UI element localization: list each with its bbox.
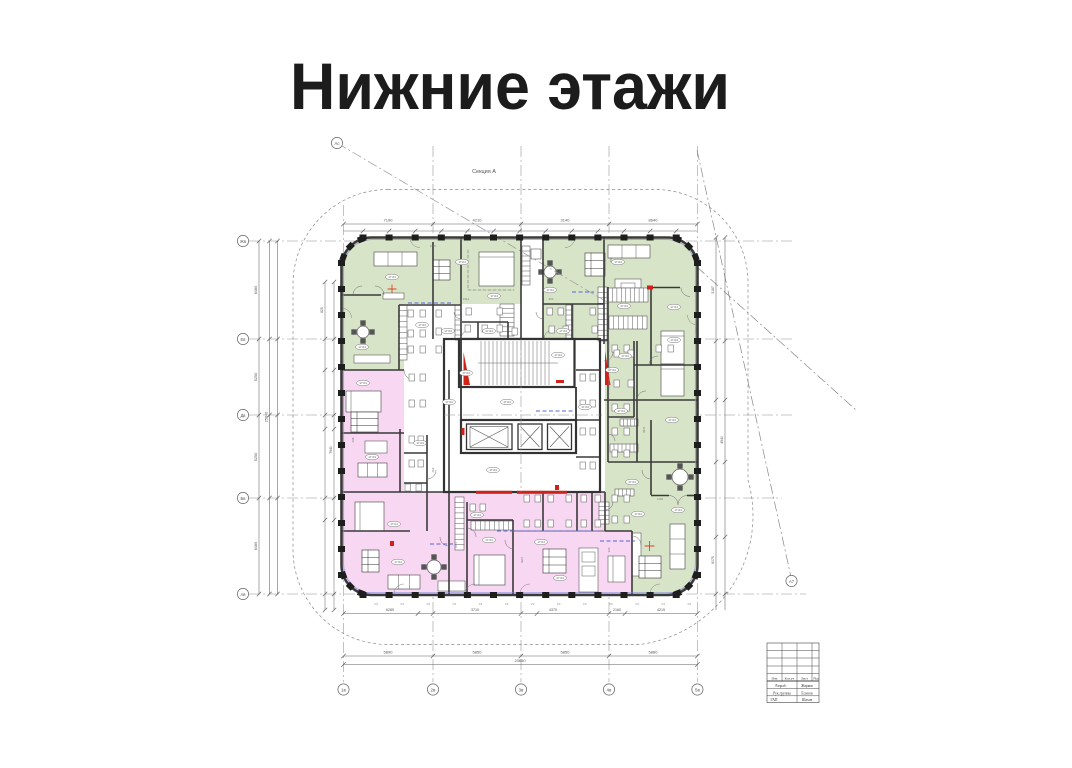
svg-text:17.04: 17.04 (554, 353, 562, 357)
svg-text:5850: 5850 (473, 650, 483, 655)
svg-text:17.04: 17.04 (608, 368, 616, 372)
svg-text:У3: У3 (505, 602, 509, 606)
svg-text:17.04: 17.04 (581, 405, 589, 409)
svg-text:650: 650 (431, 468, 435, 473)
svg-text:17.04: 17.04 (668, 418, 676, 422)
svg-text:17.04: 17.04 (390, 522, 398, 526)
svg-text:17.04: 17.04 (670, 305, 678, 309)
svg-text:17.04: 17.04 (473, 513, 481, 517)
svg-text:5250: 5250 (254, 373, 258, 381)
svg-text:2в: 2в (431, 687, 437, 692)
svg-text:А7: А7 (789, 579, 795, 584)
svg-text:Дв: Дв (240, 413, 246, 418)
svg-text:6480: 6480 (254, 286, 258, 294)
svg-text:4940: 4940 (720, 436, 724, 444)
svg-text:Ав: Ав (240, 592, 246, 597)
svg-text:605: 605 (607, 548, 611, 553)
svg-text:25640: 25640 (265, 412, 269, 423)
svg-text:17.04: 17.04 (546, 288, 554, 292)
svg-text:17.04: 17.04 (485, 329, 493, 333)
svg-text:У3: У3 (479, 602, 483, 606)
svg-text:ГАП: ГАП (771, 698, 778, 702)
svg-text:У3: У3 (426, 602, 430, 606)
svg-text:1в: 1в (341, 687, 347, 692)
svg-text:У3: У3 (374, 602, 378, 606)
svg-text:3в: 3в (519, 687, 525, 692)
svg-text:5250: 5250 (254, 453, 258, 461)
svg-text:Лист: Лист (801, 677, 809, 681)
svg-text:17.04: 17.04 (416, 441, 424, 445)
svg-text:17.04: 17.04 (614, 260, 622, 264)
svg-text:Жарков: Жарков (801, 684, 813, 688)
svg-text:17.04: 17.04 (490, 294, 498, 298)
svg-text:№д: №д (814, 677, 819, 681)
svg-text:Шахов: Шахов (802, 698, 813, 702)
svg-text:У3: У3 (557, 602, 561, 606)
svg-text:Ас: Ас (335, 141, 340, 146)
svg-text:7940: 7940 (329, 446, 333, 454)
svg-text:Кол.уч: Кол.уч (785, 677, 795, 681)
svg-text:17.04: 17.04 (674, 508, 682, 512)
svg-text:У3: У3 (400, 602, 404, 606)
svg-text:17.04: 17.04 (620, 304, 628, 308)
svg-text:17.04: 17.04 (489, 468, 497, 472)
svg-text:17.04: 17.04 (670, 338, 678, 342)
svg-text:17.04: 17.04 (503, 400, 511, 404)
svg-text:У3: У3 (661, 602, 665, 606)
svg-text:825: 825 (320, 307, 324, 313)
svg-text:4215: 4215 (657, 608, 665, 612)
svg-text:6485: 6485 (254, 542, 258, 550)
svg-text:Нижние этажи: Нижние этажи (290, 50, 730, 123)
svg-text:17.04: 17.04 (359, 381, 367, 385)
svg-text:23650: 23650 (514, 658, 526, 663)
svg-text:У3: У3 (531, 602, 535, 606)
svg-text:У3: У3 (453, 602, 457, 606)
svg-text:4370: 4370 (549, 608, 557, 612)
svg-text:У3: У3 (635, 602, 639, 606)
svg-text:Изм: Изм (772, 677, 779, 681)
svg-text:4210: 4210 (473, 218, 483, 223)
svg-text:17.04: 17.04 (358, 345, 366, 349)
svg-text:6285: 6285 (386, 608, 394, 612)
svg-text:Бв: Бв (241, 496, 247, 501)
svg-text:17.04: 17.04 (418, 323, 426, 327)
svg-text:900: 900 (351, 438, 355, 443)
svg-text:3710: 3710 (471, 608, 479, 612)
svg-text:5в: 5в (695, 687, 701, 692)
svg-text:17.04: 17.04 (537, 540, 545, 544)
svg-text:1914: 1914 (463, 297, 470, 301)
svg-text:17.04: 17.04 (458, 260, 466, 264)
svg-text:914: 914 (397, 328, 401, 333)
svg-text:17.04: 17.04 (634, 512, 642, 516)
svg-text:17.04: 17.04 (617, 409, 625, 413)
svg-text:17.04: 17.04 (621, 354, 629, 358)
svg-text:17.04: 17.04 (368, 455, 376, 459)
svg-text:2160: 2160 (613, 608, 621, 612)
svg-text:17.04: 17.04 (388, 275, 396, 279)
svg-text:17.04: 17.04 (556, 576, 564, 580)
svg-text:9107: 9107 (430, 244, 437, 248)
svg-text:17.04: 17.04 (394, 560, 402, 564)
svg-text:17.04: 17.04 (444, 329, 452, 333)
svg-text:1050: 1050 (642, 427, 646, 434)
svg-text:Есипов: Есипов (801, 691, 812, 695)
svg-text:5890: 5890 (384, 650, 394, 655)
svg-text:8640: 8640 (649, 218, 659, 223)
svg-text:2150: 2150 (520, 557, 524, 564)
svg-text:Жв: Жв (240, 239, 247, 244)
svg-text:17.04: 17.04 (485, 538, 493, 542)
svg-text:У3: У3 (609, 602, 613, 606)
svg-text:17.04: 17.04 (628, 480, 636, 484)
svg-text:17.04: 17.04 (445, 400, 453, 404)
svg-text:17.04: 17.04 (462, 371, 470, 375)
svg-text:3140: 3140 (561, 218, 571, 223)
svg-text:Секция А: Секция А (472, 169, 496, 175)
svg-text:У3: У3 (687, 602, 691, 606)
svg-text:5880: 5880 (649, 650, 659, 655)
svg-text:7190: 7190 (384, 218, 394, 223)
svg-text:Рук.группы: Рук.группы (773, 691, 791, 695)
svg-text:Разраб.: Разраб. (775, 684, 786, 688)
svg-text:3187: 3187 (711, 286, 715, 294)
svg-text:У3: У3 (583, 602, 587, 606)
svg-text:17.04: 17.04 (559, 329, 567, 333)
svg-text:5850: 5850 (561, 650, 571, 655)
svg-text:1202: 1202 (454, 542, 458, 549)
svg-text:4в: 4в (607, 687, 613, 692)
svg-text:1202: 1202 (657, 497, 664, 501)
svg-text:600: 600 (549, 297, 554, 301)
svg-text:6075: 6075 (711, 556, 715, 564)
svg-text:Ев: Ев (240, 337, 246, 342)
